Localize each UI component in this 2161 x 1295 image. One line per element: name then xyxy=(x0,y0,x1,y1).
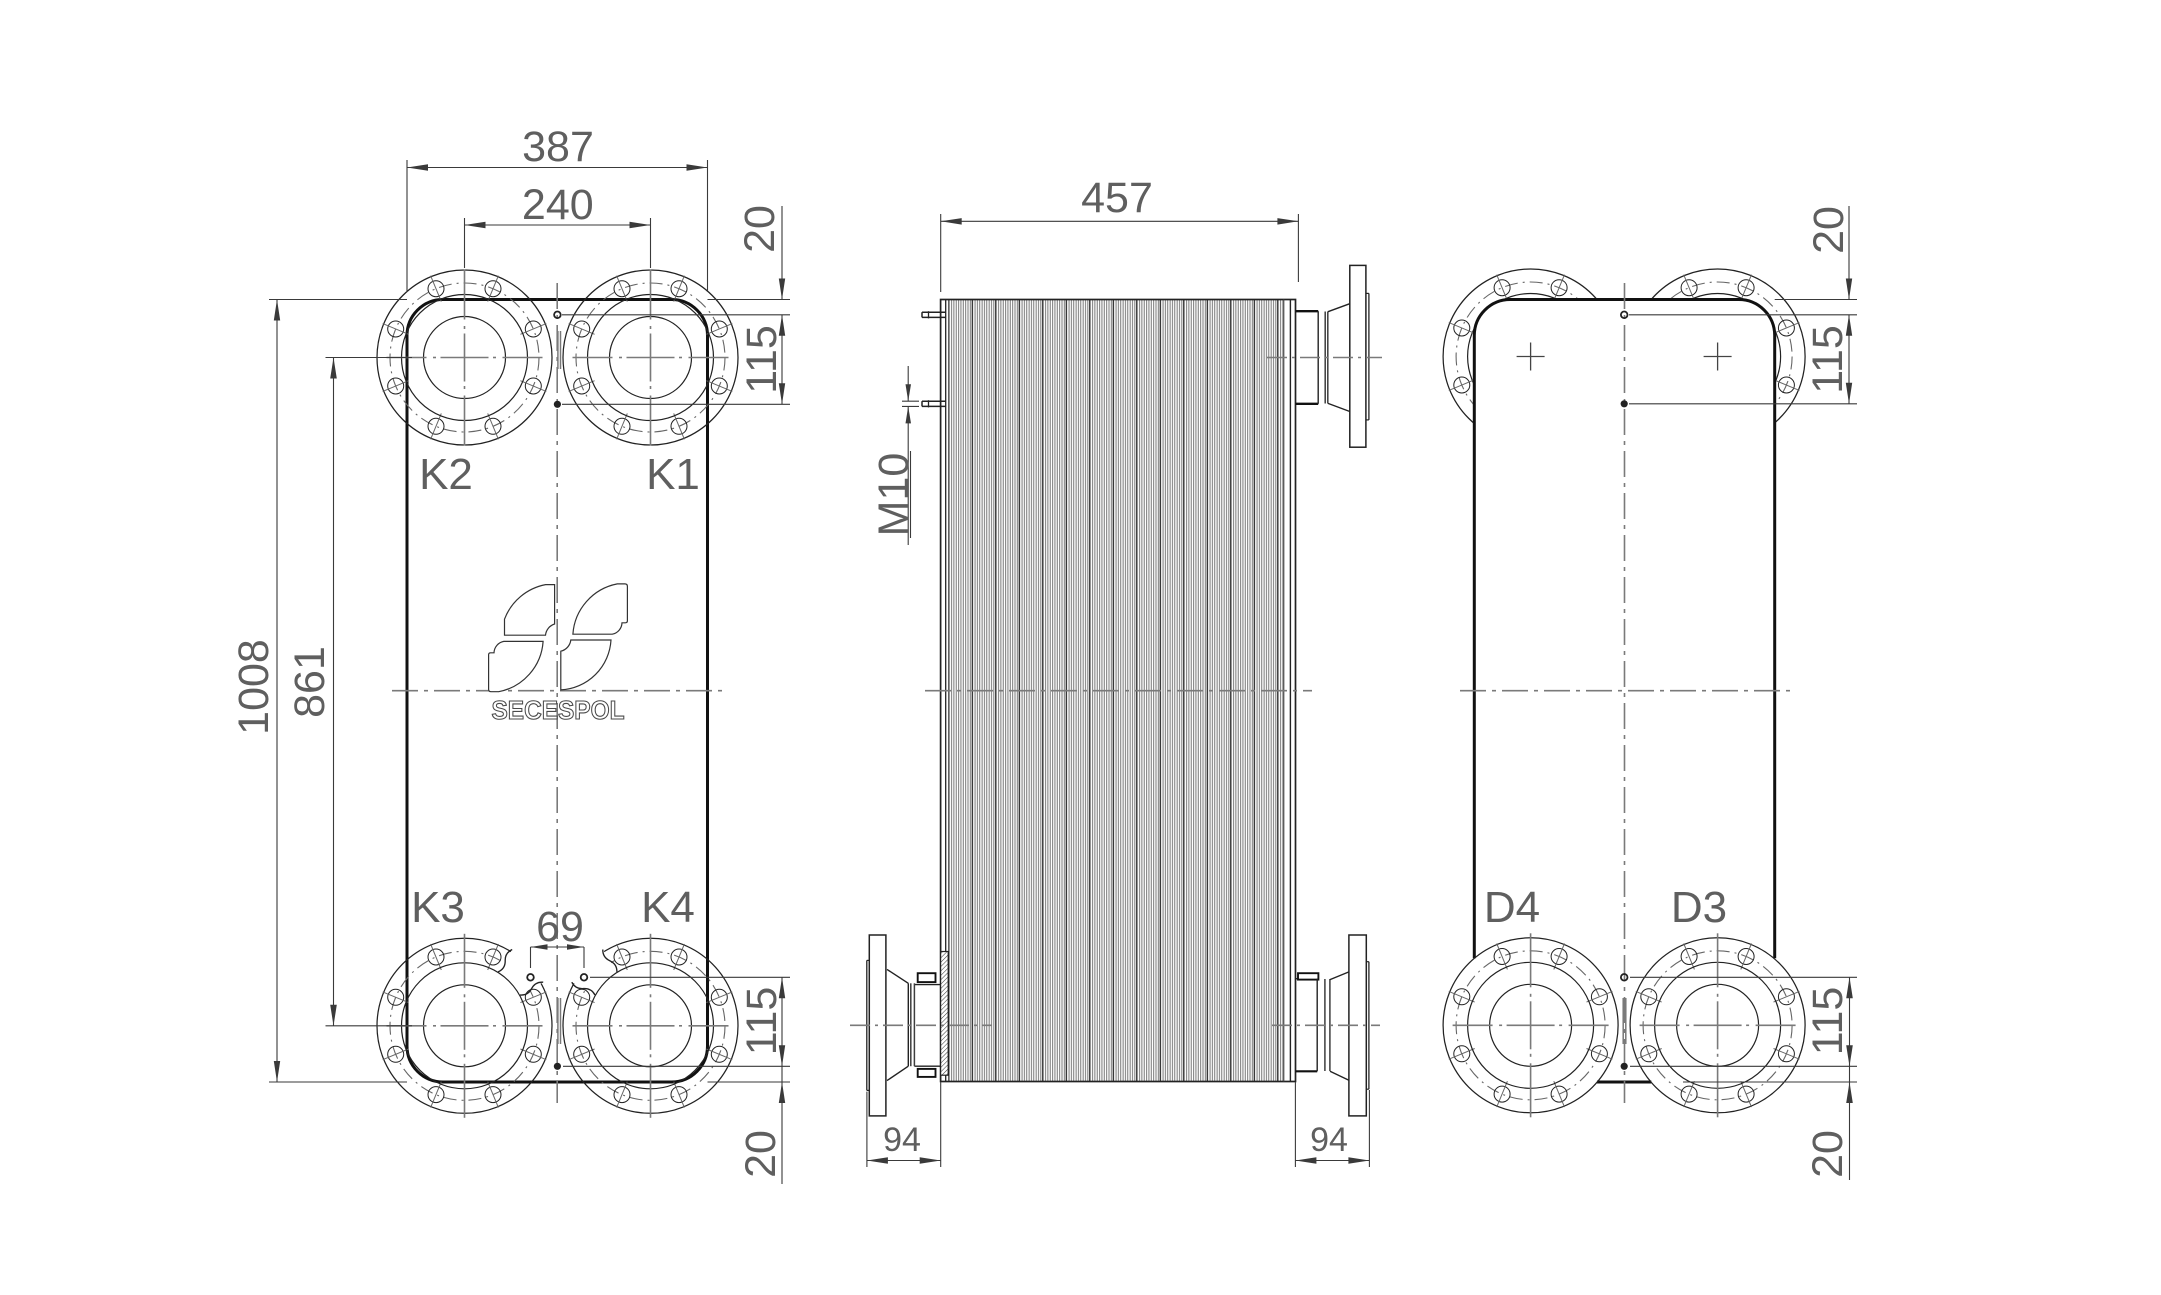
svg-text:20: 20 xyxy=(1804,1130,1852,1178)
svg-text:20: 20 xyxy=(737,1130,785,1178)
svg-text:387: 387 xyxy=(522,123,594,171)
svg-text:94: 94 xyxy=(883,1121,921,1159)
svg-text:K3: K3 xyxy=(411,883,465,932)
svg-text:20: 20 xyxy=(736,205,784,253)
svg-text:K4: K4 xyxy=(641,883,695,932)
svg-text:861: 861 xyxy=(286,646,334,718)
svg-text:94: 94 xyxy=(1310,1121,1348,1159)
svg-text:240: 240 xyxy=(522,181,594,229)
svg-text:115: 115 xyxy=(738,325,786,394)
svg-text:K2: K2 xyxy=(419,450,473,499)
svg-text:69: 69 xyxy=(536,903,584,951)
svg-text:SECESPOL: SECESPOL xyxy=(492,695,625,725)
svg-text:20: 20 xyxy=(1805,206,1853,254)
svg-text:K1: K1 xyxy=(646,450,700,499)
svg-text:1008: 1008 xyxy=(230,639,278,735)
svg-text:457: 457 xyxy=(1081,174,1153,222)
svg-text:115: 115 xyxy=(1804,325,1852,394)
svg-text:D3: D3 xyxy=(1671,883,1727,932)
svg-text:D4: D4 xyxy=(1484,883,1540,932)
svg-text:115: 115 xyxy=(738,987,786,1056)
svg-text:115: 115 xyxy=(1804,987,1852,1056)
